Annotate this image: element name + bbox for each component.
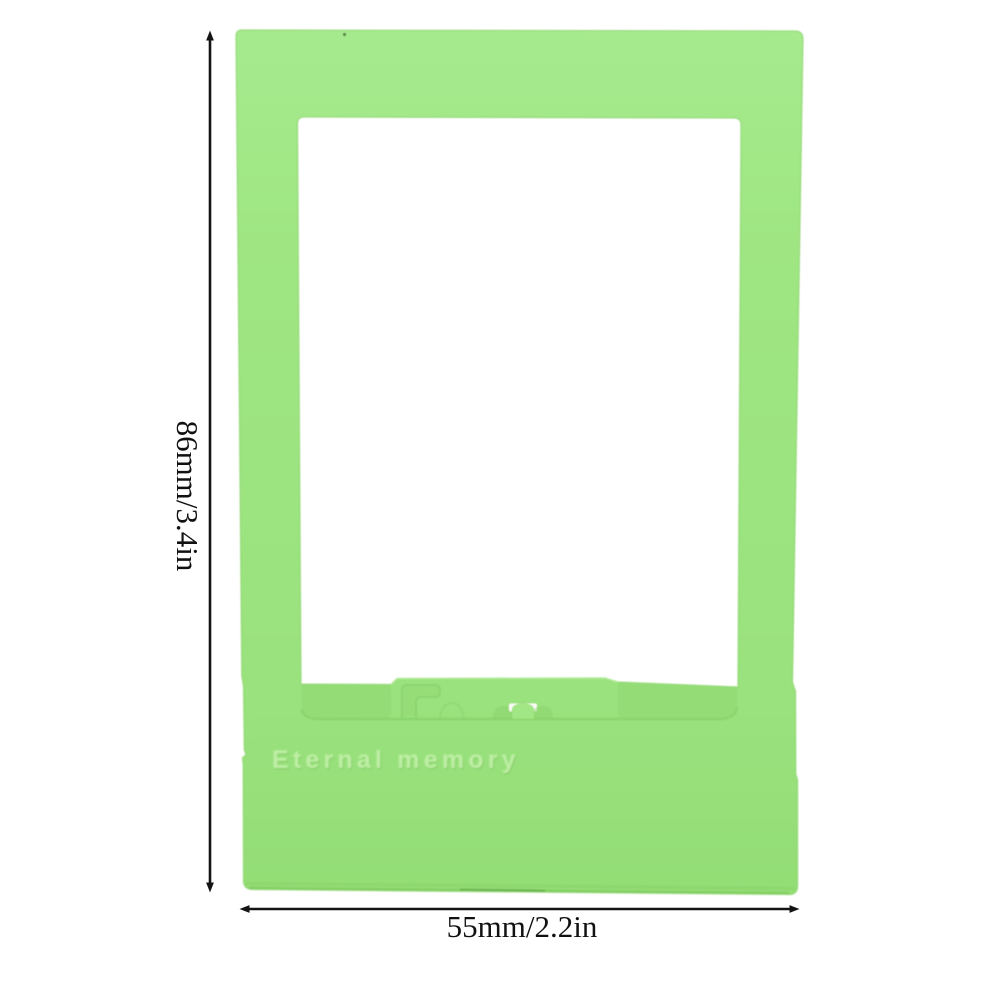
svg-text:Eternal memory: Eternal memory: [272, 746, 520, 774]
svg-text:55mm/2.2in: 55mm/2.2in: [447, 909, 598, 944]
svg-text:86mm/3.4in: 86mm/3.4in: [170, 421, 205, 572]
